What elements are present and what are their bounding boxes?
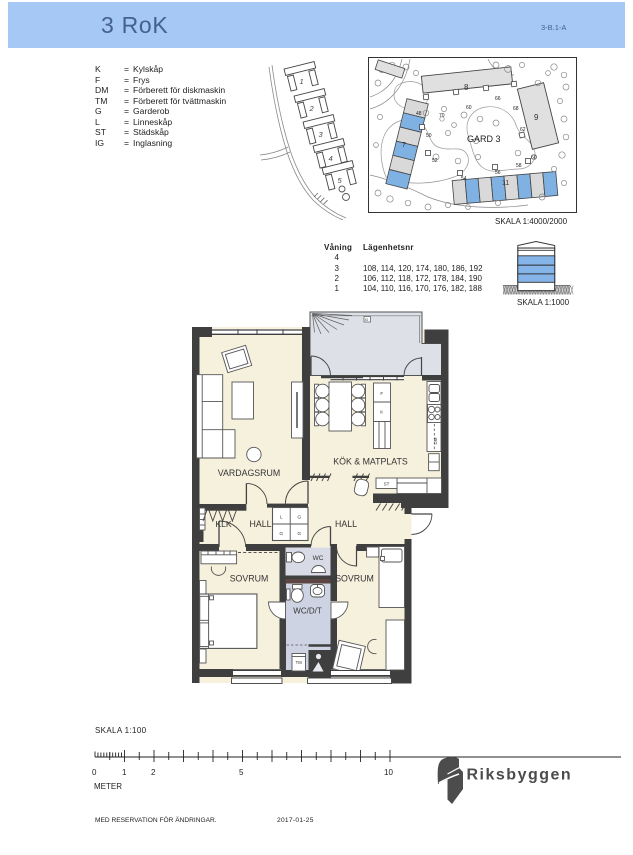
- svg-text:52: 52: [432, 158, 438, 164]
- svg-text:SOVRUM: SOVRUM: [335, 574, 374, 584]
- svg-text:WC/D/T: WC/D/T: [293, 607, 322, 616]
- svg-text:GARD 3: GARD 3: [467, 134, 501, 144]
- svg-text:L: L: [280, 515, 283, 521]
- svg-text:4: 4: [329, 154, 333, 163]
- svg-text:KLK: KLK: [215, 519, 232, 529]
- svg-text:9: 9: [534, 113, 539, 122]
- svg-text:11: 11: [502, 180, 509, 187]
- svg-text:62: 62: [520, 127, 526, 133]
- svg-text:66: 66: [495, 96, 501, 102]
- svg-text:3: 3: [319, 130, 324, 139]
- svg-text:HALL: HALL: [335, 519, 357, 529]
- svg-text:50: 50: [426, 133, 432, 139]
- svg-text:G: G: [297, 531, 301, 537]
- svg-text:1: 1: [300, 77, 304, 86]
- svg-text:54: 54: [461, 176, 467, 182]
- svg-text:F: F: [380, 391, 383, 396]
- svg-text:IG: IG: [365, 318, 369, 322]
- svg-text:56: 56: [495, 170, 501, 176]
- svg-text:TM: TM: [296, 660, 303, 665]
- svg-text:5: 5: [338, 176, 343, 185]
- svg-text:VARDAGSRUM: VARDAGSRUM: [218, 468, 280, 478]
- svg-text:Riksbyggen: Riksbyggen: [467, 767, 573, 784]
- svg-text:60: 60: [531, 155, 537, 161]
- svg-text:2: 2: [309, 104, 315, 113]
- svg-text:KÖK & MATPLATS: KÖK & MATPLATS: [333, 457, 408, 467]
- svg-text:68: 68: [513, 106, 519, 112]
- svg-text:SOVRUM: SOVRUM: [230, 574, 269, 584]
- svg-text:WC: WC: [313, 555, 324, 562]
- svg-text:K: K: [380, 410, 383, 415]
- svg-text:58: 58: [516, 163, 522, 169]
- svg-text:48: 48: [416, 111, 422, 117]
- svg-text:DM: DM: [433, 437, 438, 444]
- svg-text:HALL: HALL: [249, 519, 271, 529]
- svg-text:G: G: [279, 531, 283, 537]
- svg-text:ST: ST: [384, 482, 390, 487]
- svg-text:7: 7: [402, 142, 406, 149]
- svg-text:8: 8: [464, 83, 469, 92]
- svg-text:60: 60: [466, 105, 472, 111]
- svg-text:G: G: [297, 515, 301, 521]
